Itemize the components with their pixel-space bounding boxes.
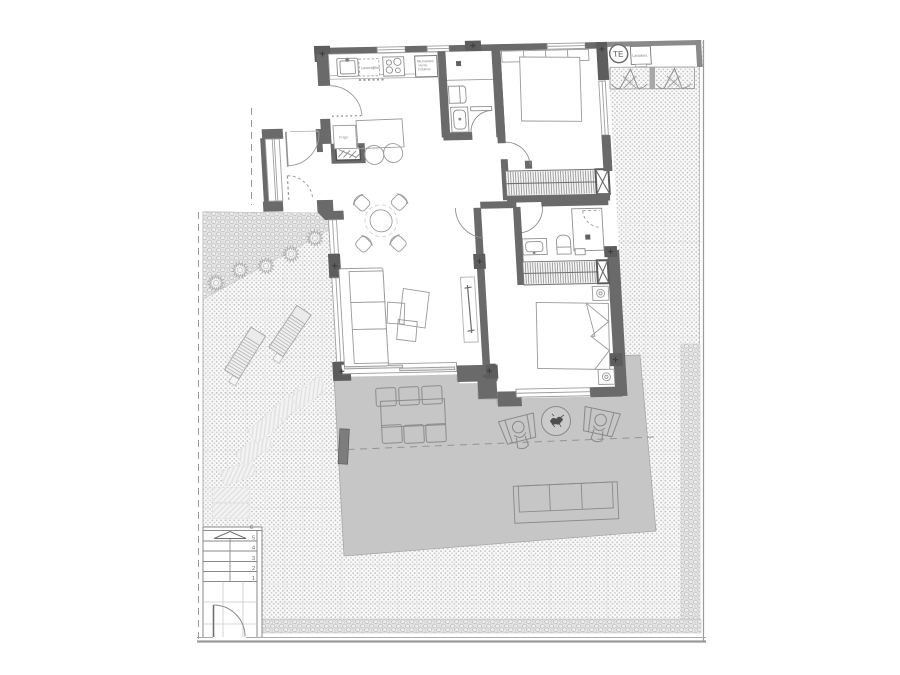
svg-text:Columna: Columna [418, 67, 431, 71]
svg-text:4: 4 [252, 546, 255, 552]
svg-text:5: 5 [252, 536, 255, 542]
svg-text:6: 6 [250, 525, 253, 531]
svg-text:Lavadora: Lavadora [632, 54, 647, 58]
svg-text:1: 1 [252, 576, 255, 582]
svg-text:Lavavajillas: Lavavajillas [361, 66, 380, 70]
svg-text:TE: TE [613, 50, 624, 59]
svg-text:2: 2 [252, 566, 255, 572]
svg-text:3: 3 [252, 556, 255, 562]
svg-text:Frigo: Frigo [339, 135, 348, 139]
